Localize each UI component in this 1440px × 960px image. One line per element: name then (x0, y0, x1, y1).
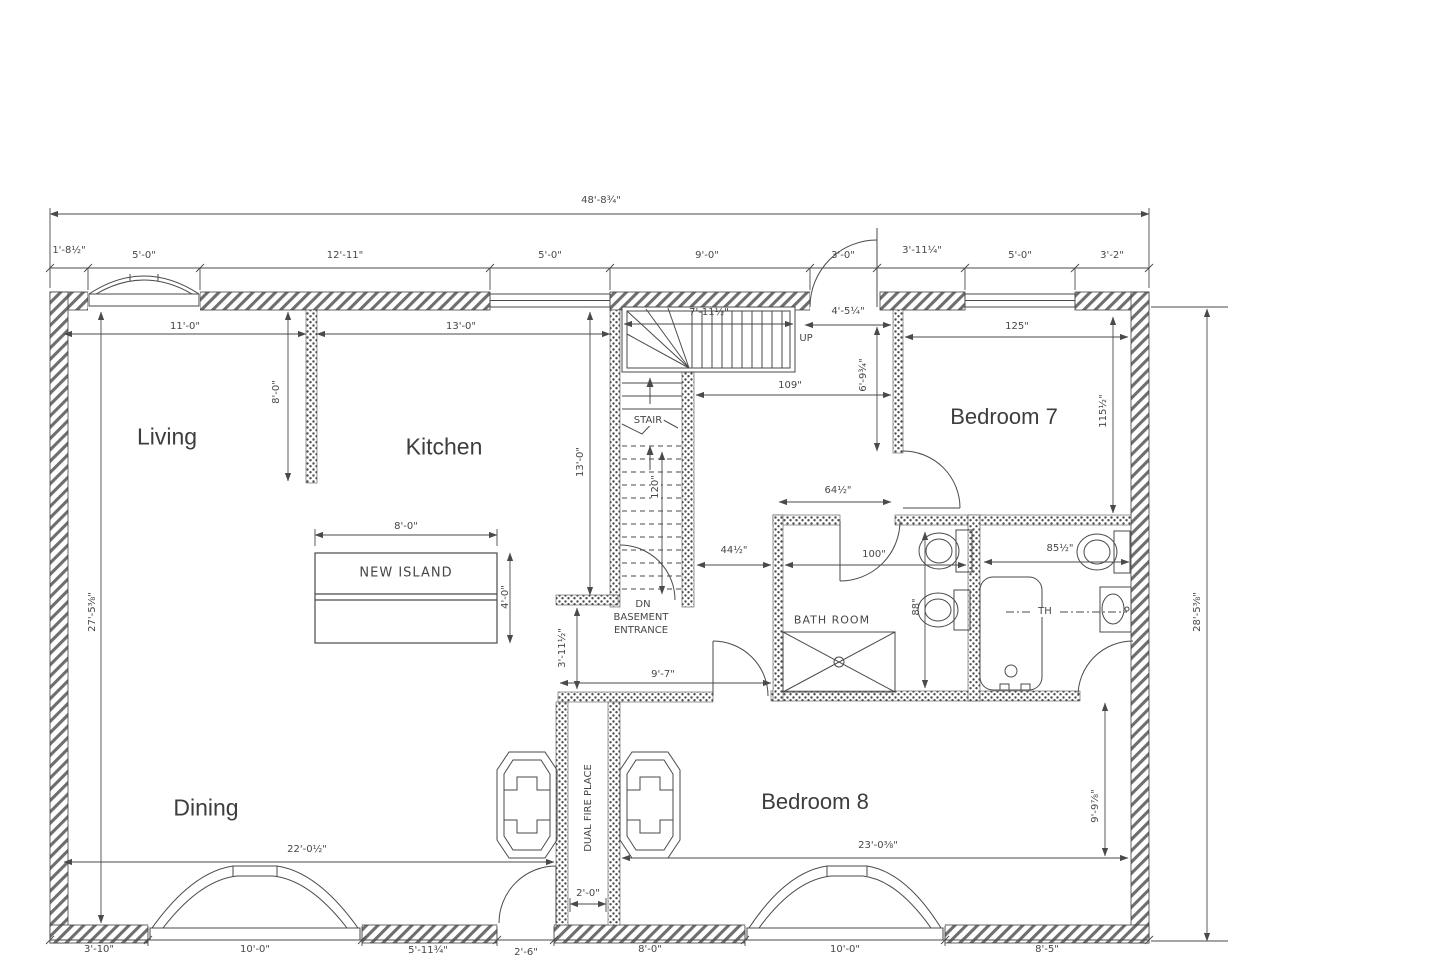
dim-right-height: 28'-5⅜" (1193, 592, 1203, 632)
exterior-walls (50, 292, 1149, 943)
dim-left-height: 27'-5⅜" (88, 592, 98, 632)
label-dual-fireplace: DUAL FIRE PLACE (584, 764, 594, 852)
bathtub-icon (980, 577, 1042, 690)
toilet-icon (1077, 531, 1130, 573)
label-stair: STAIR (632, 416, 664, 426)
dim-living-wall: 8'-0" (272, 380, 282, 404)
dim-kitchen-width: 13'-0" (446, 322, 476, 332)
dim-hall-depth: 6'-9¾" (859, 358, 869, 391)
dim-top-1: 5'-0" (132, 251, 156, 261)
dim-top-6: 3'-11¼" (902, 246, 942, 256)
room-label-bathroom: BATH ROOM (794, 615, 870, 626)
dim-stair-run: 120" (651, 473, 661, 501)
window-bedroom7 (965, 294, 1075, 307)
window-kitchen (490, 294, 610, 307)
dim-bedroom8-height: 9'-9⅞" (1091, 789, 1101, 822)
dim-bottom-6: 8'-5" (1035, 945, 1059, 955)
windows (88, 274, 1075, 944)
dim-bottom-3: 2'-6" (514, 948, 538, 958)
dim-overall-width: 48'-8¾" (581, 196, 621, 206)
dim-stair-width: 7'-11½" (689, 308, 729, 318)
room-label-living: Living (137, 426, 197, 449)
dim-bottom-4: 8'-0" (638, 945, 662, 955)
dim-hall-bath: 64½" (824, 486, 851, 496)
dim-hall-opening: 3'-11½" (558, 628, 568, 668)
room-label-dining: Dining (173, 797, 238, 820)
label-basement: BASEMENT (614, 613, 669, 623)
toilet-icon (918, 590, 970, 630)
dim-hall-entry: 4'-5¼" (831, 307, 864, 317)
dim-top-3: 5'-0" (538, 251, 562, 261)
dim-bedroom7-height: 115½" (1099, 394, 1109, 427)
sink-icon (1100, 587, 1131, 632)
bow-window-dining (148, 866, 362, 944)
dim-island-width: 8'-0" (394, 522, 418, 532)
dim-living-width: 11'-0" (170, 322, 200, 332)
dim-bath-width: 100" (862, 550, 886, 560)
bedroom7-door (903, 451, 960, 508)
floor-plan-canvas: Living Kitchen Bedroom 7 Dining Bedroom … (0, 0, 1440, 960)
label-towel-holder: TH (1036, 607, 1054, 617)
dim-hall-lower: 44½" (720, 546, 747, 556)
room-label-bedroom7: Bedroom 7 (950, 406, 1058, 428)
dim-bottom-1: 10'-0" (240, 945, 270, 955)
label-entrance: ENTRANCE (614, 626, 668, 636)
tub-room-door (1078, 641, 1133, 696)
dim-bottom-5: 10'-0" (830, 945, 860, 955)
bow-window-living (88, 274, 200, 311)
dim-hall-bottom: 9'-7" (651, 670, 675, 680)
entry-door (810, 228, 877, 311)
label-dn: DN (635, 600, 650, 610)
room-label-bedroom8: Bedroom 8 (761, 791, 869, 813)
dim-bottom-2: 5'-11¾" (408, 946, 448, 956)
dim-island-depth: 4'-0" (501, 585, 511, 609)
shower-icon (783, 632, 895, 692)
dim-stair-height: 13'-0" (576, 447, 586, 477)
label-new-island: NEW ISLAND (359, 567, 452, 580)
dim-top-7: 5'-0" (1008, 251, 1032, 261)
dim-top-4: 9'-0" (695, 251, 719, 261)
dim-bottom-0: 3'-10" (84, 945, 114, 955)
dim-bedroom7-width: 125" (1005, 322, 1029, 332)
dim-bedroom8-width: 23'-0⅜" (858, 841, 898, 851)
dim-bath-height: 88" (912, 598, 922, 615)
toilet-icon (919, 530, 972, 572)
bow-window-bedroom8 (745, 866, 945, 944)
bath-fixtures (783, 530, 1131, 692)
basement-door (620, 545, 675, 600)
dim-top-0: 1'-8½" (52, 246, 85, 256)
dim-top-5: 3'-0" (831, 251, 855, 261)
label-up: UP (799, 334, 812, 344)
dim-tub-room-width: 85½" (1046, 544, 1073, 554)
room-label-kitchen: Kitchen (406, 436, 483, 459)
dining-exterior-door (497, 866, 556, 944)
bedroom8-door (713, 641, 768, 696)
dim-top-8: 3'-2" (1100, 251, 1124, 261)
dim-dining-width: 22'-0½" (287, 845, 327, 855)
dim-hall-width: 109" (778, 381, 802, 391)
dim-top-2: 12'-11" (327, 251, 363, 261)
dim-fireplace-width: 2'-0" (576, 889, 600, 899)
